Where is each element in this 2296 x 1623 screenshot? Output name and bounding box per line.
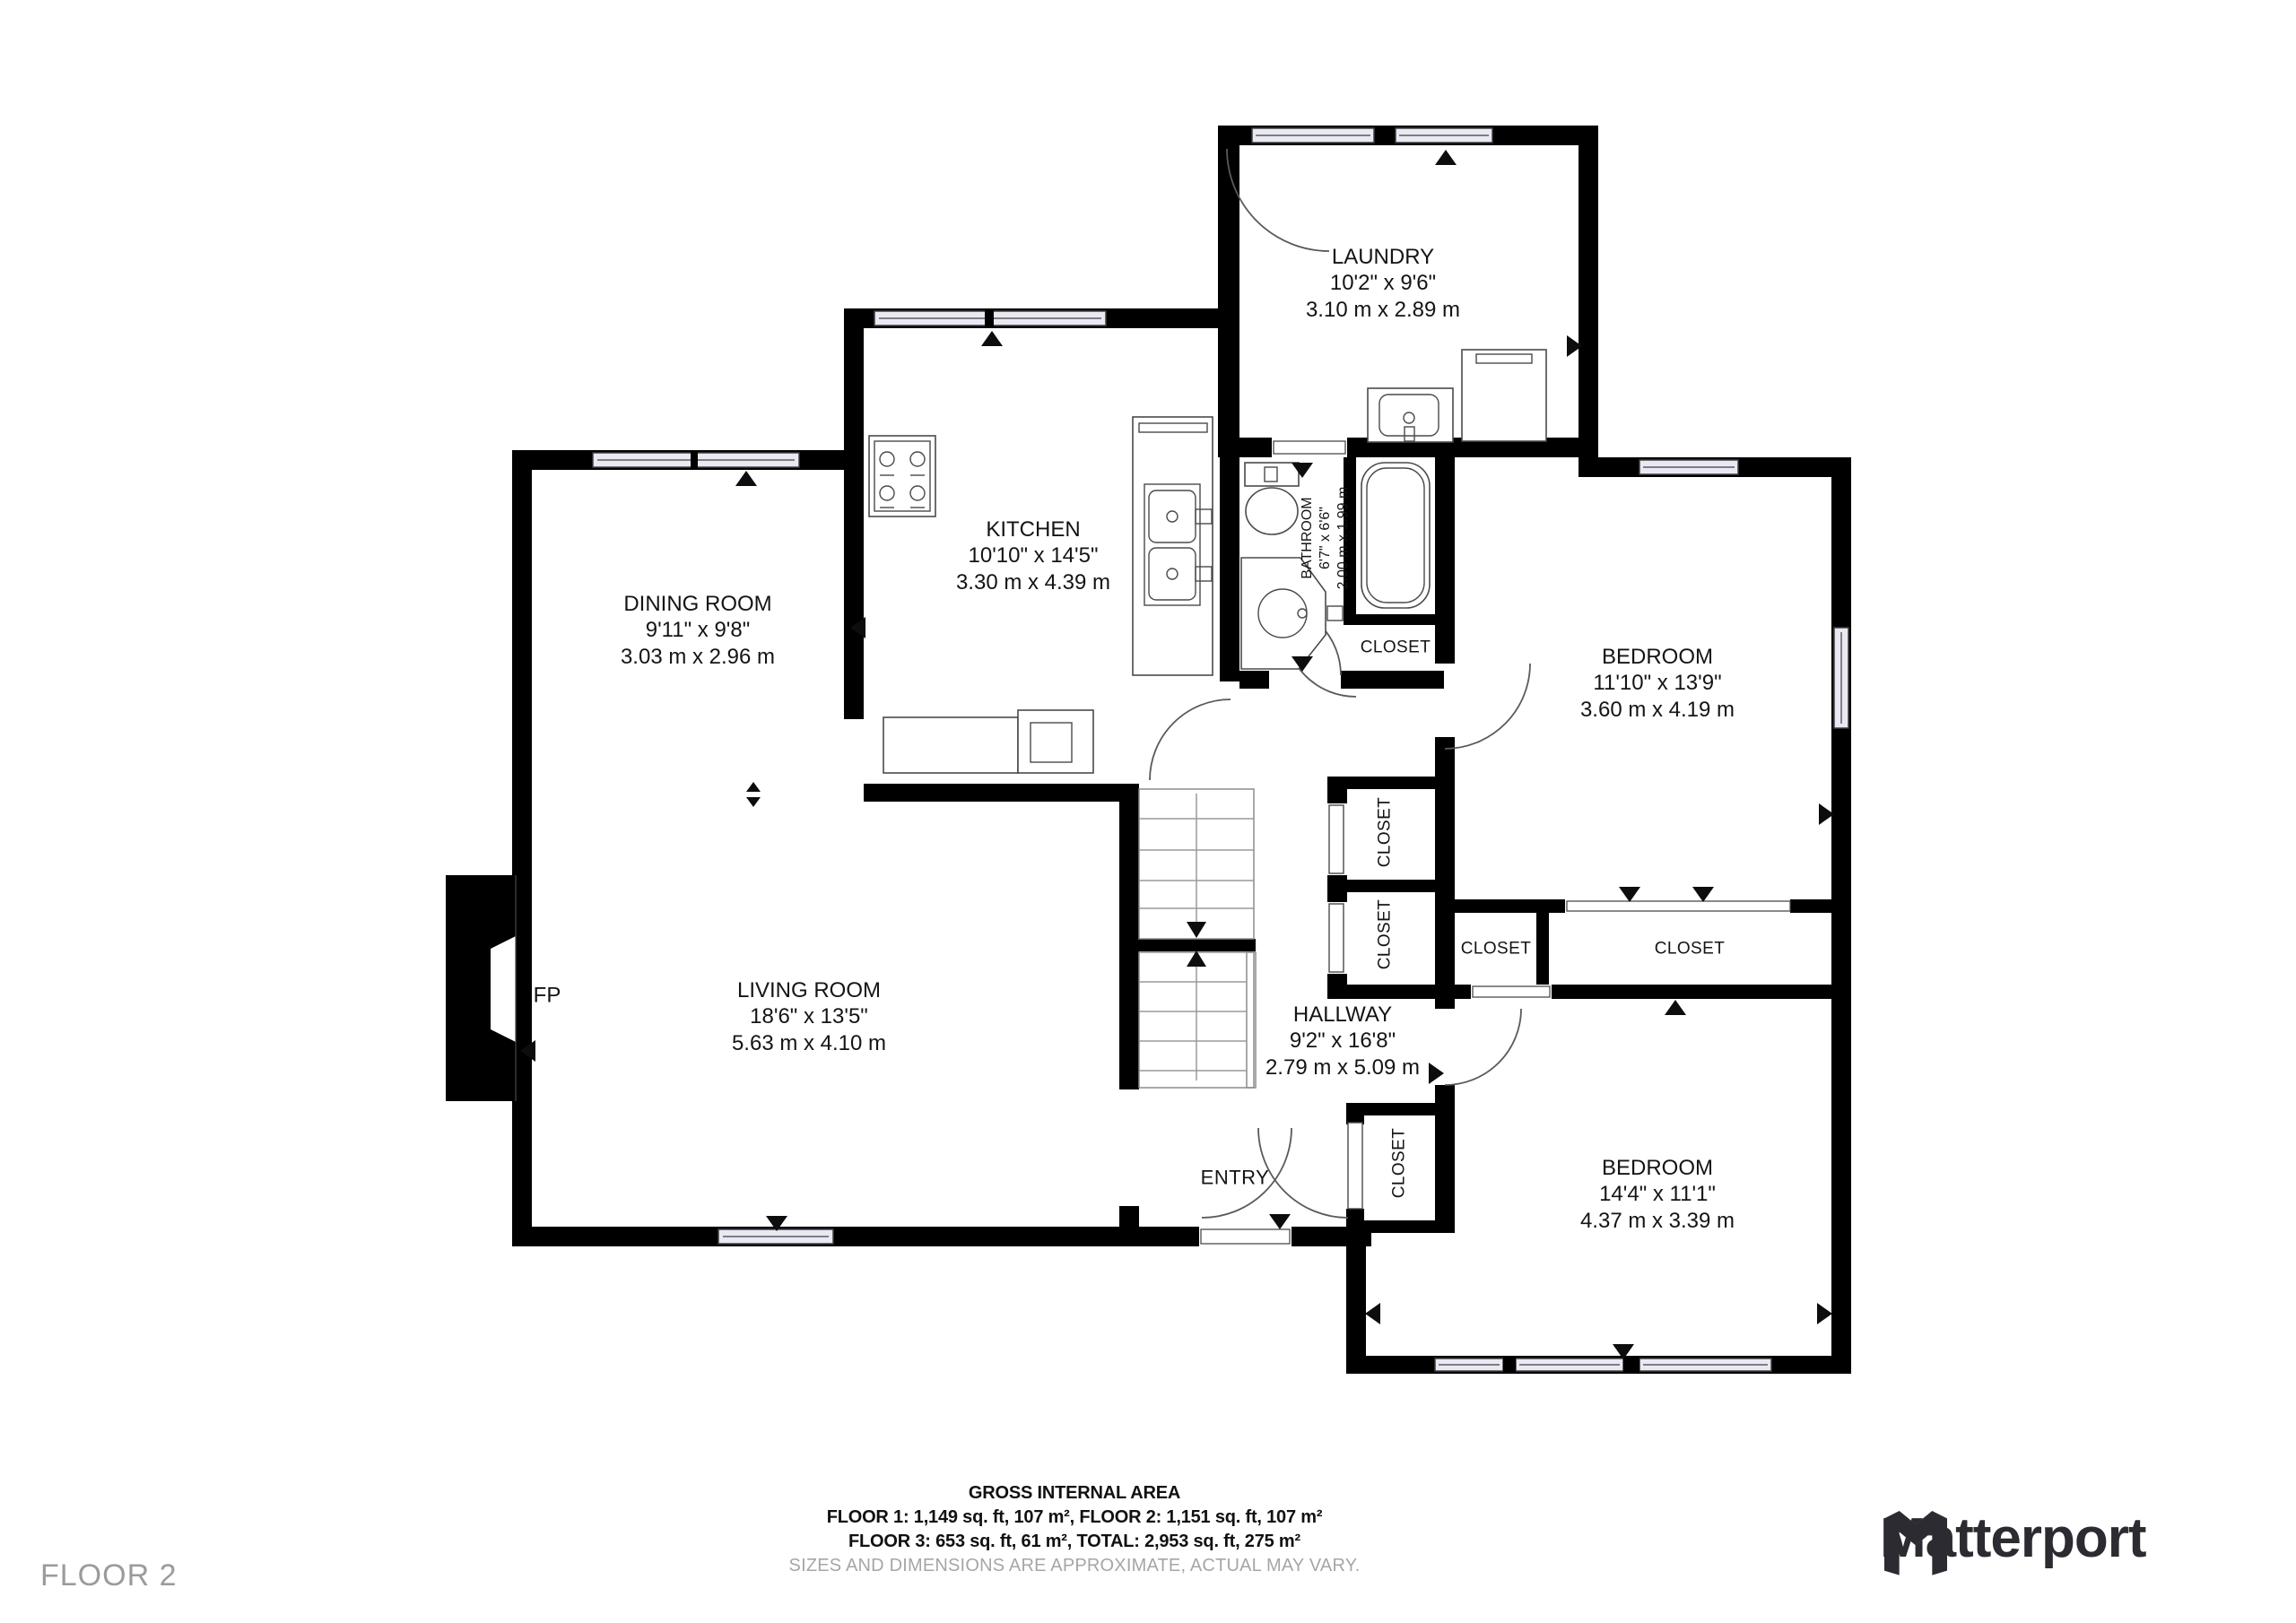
- room-name: LIVING ROOM: [732, 977, 886, 1003]
- floor-label: FLOOR 2: [40, 1558, 177, 1593]
- footer-title: GROSS INTERNAL AREA: [716, 1481, 1433, 1506]
- closet-label: CLOSET: [1374, 899, 1395, 969]
- room-name: DINING ROOM: [621, 591, 775, 617]
- room-label-entry: ENTRY: [1201, 1167, 1270, 1191]
- room-name: BEDROOM: [1580, 644, 1735, 670]
- closet-label: CLOSET: [1361, 637, 1431, 657]
- room-dims-metric: 4.37 m x 3.39 m: [1580, 1208, 1735, 1234]
- room-dims-metric: 3.03 m x 2.96 m: [621, 644, 775, 670]
- floor-plan-canvas: [0, 0, 2296, 1623]
- footer-disclaimer: SIZES AND DIMENSIONS ARE APPROXIMATE, AC…: [716, 1554, 1433, 1578]
- laundry-sink-icon: [1368, 388, 1453, 442]
- stove-icon: [869, 436, 935, 516]
- fireplace-label: FP: [534, 982, 561, 1008]
- door-arc: [1150, 699, 1231, 780]
- room-name: BEDROOM: [1580, 1155, 1735, 1181]
- room-label-dining: DINING ROOM 9'11" x 9'8" 3.03 m x 2.96 m: [621, 591, 775, 670]
- room-dims-metric: 5.63 m x 4.10 m: [732, 1030, 886, 1056]
- room-dims-imperial: 6'7" x 6'6": [1317, 487, 1335, 590]
- room-label-kitchen: KITCHEN 10'10" x 14'5" 3.30 m x 4.39 m: [956, 516, 1110, 595]
- toilet-icon: [1245, 463, 1299, 534]
- kitchen-counter-icon: [883, 710, 1093, 773]
- gross-internal-area: GROSS INTERNAL AREA FLOOR 1: 1,149 sq. f…: [716, 1481, 1433, 1578]
- window: [1516, 1358, 1623, 1371]
- door-arc: [1227, 149, 1329, 251]
- footer-areas-line2: FLOOR 3: 653 sq. ft, 61 m², TOTAL: 2,953…: [716, 1530, 1433, 1554]
- window: [1252, 128, 1374, 143]
- floor-plan-page: LAUNDRY 10'2" x 9'6" 3.10 m x 2.89 m KIT…: [0, 0, 2296, 1623]
- room-dims-imperial: 10'10" x 14'5": [956, 542, 1110, 568]
- room-dims-metric: 3.30 m x 4.39 m: [956, 569, 1110, 595]
- matterport-mark-icon: [1880, 1506, 1952, 1578]
- room-label-laundry: LAUNDRY 10'2" x 9'6" 3.10 m x 2.89 m: [1306, 244, 1460, 323]
- window: [1435, 1358, 1503, 1371]
- room-dims-imperial: 9'2" x 16'8": [1265, 1028, 1420, 1054]
- room-dims-metric: 2.00 m x 1.99 m: [1335, 487, 1352, 590]
- room-dims-imperial: 18'6" x 13'5": [732, 1003, 886, 1029]
- room-label-hallway: HALLWAY 9'2" x 16'8" 2.79 m x 5.09 m: [1265, 1002, 1420, 1081]
- fireplace-icon: [446, 875, 516, 1101]
- room-dims-metric: 3.60 m x 4.19 m: [1580, 697, 1735, 723]
- room-dims-imperial: 11'10" x 13'9": [1580, 670, 1735, 696]
- room-dims-metric: 2.79 m x 5.09 m: [1265, 1055, 1420, 1081]
- room-label-bedroom-upper: BEDROOM 11'10" x 13'9" 3.60 m x 4.19 m: [1580, 644, 1735, 723]
- room-dims-imperial: 10'2" x 9'6": [1306, 270, 1460, 296]
- bathtub-icon: [1361, 463, 1430, 608]
- footer-areas-line1: FLOOR 1: 1,149 sq. ft, 107 m², FLOOR 2: …: [716, 1506, 1433, 1530]
- washer-icon: [1462, 350, 1546, 441]
- window: [1396, 128, 1492, 143]
- door-arc: [1258, 1128, 1348, 1218]
- closet-label: CLOSET: [1388, 1128, 1409, 1198]
- window: [1639, 1358, 1771, 1371]
- room-name: KITCHEN: [956, 516, 1110, 542]
- room-label-bathroom: BATHROOM 6'7" x 6'6" 2.00 m x 1.99 m: [1299, 487, 1352, 590]
- closet-label: CLOSET: [1461, 938, 1531, 959]
- room-name: BATHROOM: [1299, 487, 1317, 590]
- room-dims-imperial: 9'11" x 9'8": [621, 617, 775, 643]
- window: [1639, 460, 1738, 474]
- room-dims-imperial: 14'4" x 11'1": [1580, 1181, 1735, 1207]
- door-arc: [1445, 664, 1530, 749]
- window: [874, 308, 1106, 328]
- kitchen-island-sink-icon: [1133, 417, 1213, 675]
- closet-label: CLOSET: [1374, 797, 1395, 867]
- closet-label: CLOSET: [1655, 938, 1725, 959]
- window: [1834, 628, 1848, 728]
- room-name: HALLWAY: [1265, 1002, 1420, 1028]
- door-arc: [1445, 1009, 1521, 1085]
- room-label-living: LIVING ROOM 18'6" x 13'5" 5.63 m x 4.10 …: [732, 977, 886, 1056]
- room-name: LAUNDRY: [1306, 244, 1460, 270]
- room-dims-metric: 3.10 m x 2.89 m: [1306, 297, 1460, 323]
- staircase: [1139, 789, 1256, 1088]
- window: [718, 1229, 833, 1244]
- window: [593, 450, 799, 470]
- room-label-bedroom-lower: BEDROOM 14'4" x 11'1" 4.37 m x 3.39 m: [1580, 1155, 1735, 1234]
- matterport-logo: Matterport: [1880, 1506, 2146, 1570]
